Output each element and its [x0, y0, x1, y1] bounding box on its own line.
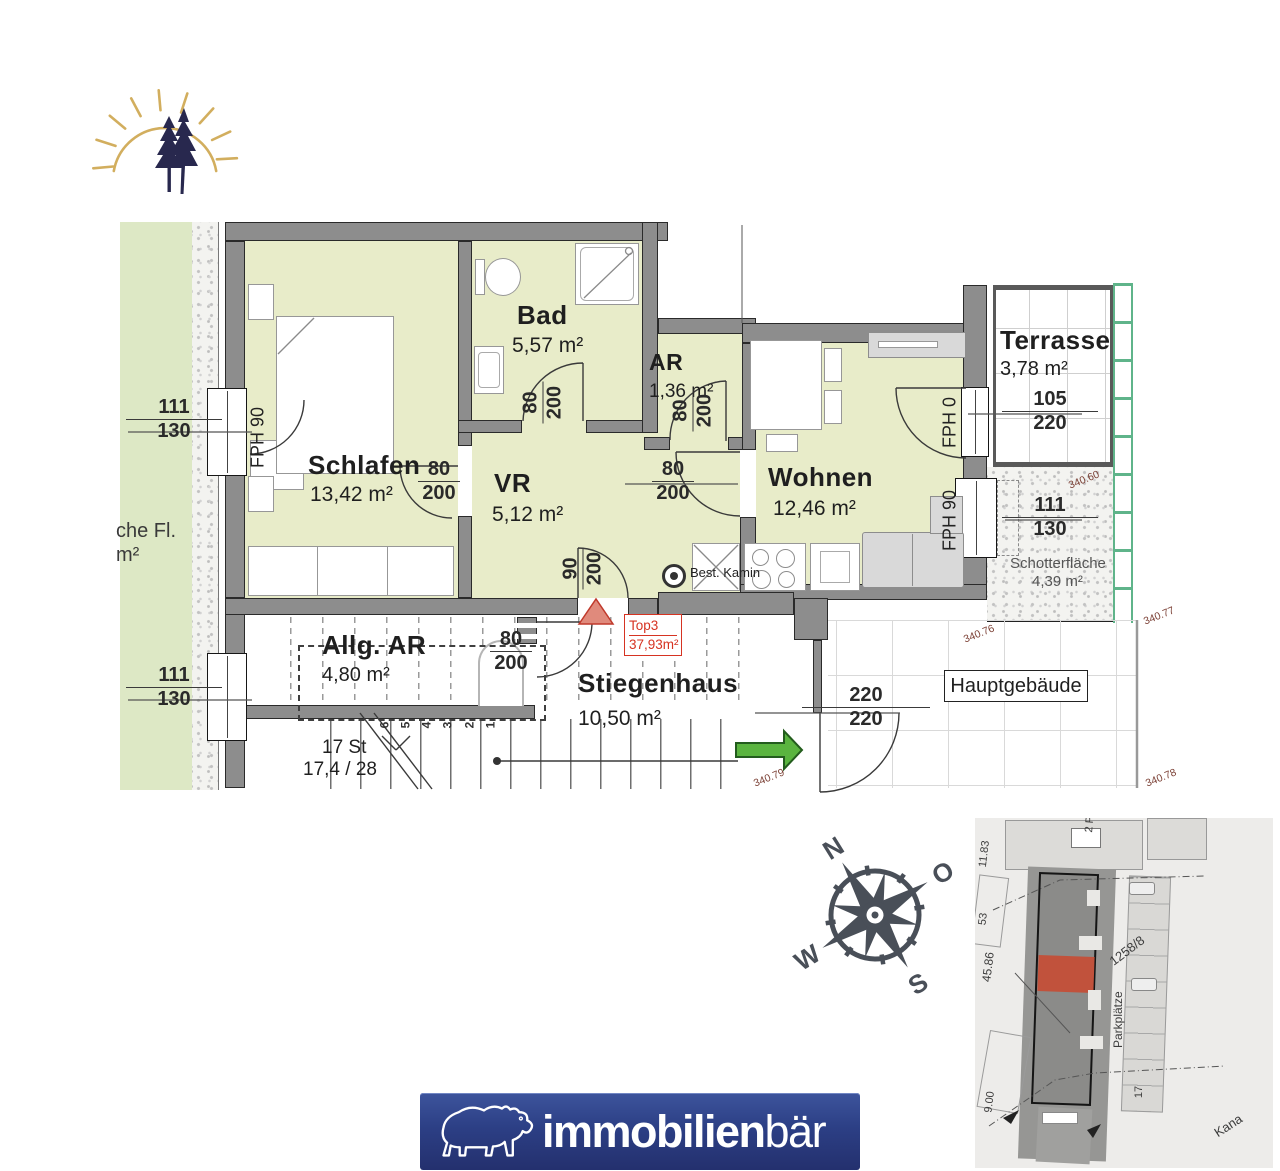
area-vr: 5,12 m²: [492, 503, 563, 527]
label-wohnen: Wohnen: [768, 462, 873, 493]
stair-linework: [360, 713, 738, 789]
unit-badge-area: 37,93m²: [629, 637, 679, 652]
site-plan: 11.83 53 45.86 9.00 2 Park 1258/8 Parkpl…: [975, 818, 1273, 1168]
dim-door-allg-ar: 80200: [490, 628, 532, 675]
step-number: 6: [377, 722, 391, 729]
dim-window-schotter: 111130: [1002, 494, 1098, 541]
area-schotterflaeche: 4,39 m²: [1032, 573, 1083, 590]
brand-name-bold: immobilien: [542, 1106, 765, 1157]
fph-left-label: FPH 90: [248, 388, 269, 488]
label-bad: Bad: [517, 300, 568, 331]
siteplan-label: Parkplätze: [1111, 991, 1125, 1048]
label-schotterflaeche: Schotterfläche: [1010, 555, 1106, 572]
dim-door-ar: 80200: [670, 390, 717, 432]
brand-banner: immobilienbär: [420, 1093, 860, 1170]
label-allg-ar: Allg. AR: [322, 630, 426, 661]
fph-right-window-label: FPH 90: [940, 471, 961, 571]
label-best-kamin: Best. Kamin: [690, 565, 760, 580]
unit-badge-name: Top3: [629, 617, 677, 636]
handrail-post: [493, 757, 501, 765]
compass-n: N: [817, 830, 849, 865]
left-cut-label-1: che Fl.: [116, 520, 176, 543]
stairs-count-label: 17 St: [322, 737, 366, 759]
hauptgebaeude-label-box: Hauptgebäude: [944, 670, 1088, 702]
unit-badge-top3: Top3 37,93m²: [624, 614, 682, 656]
label-terrasse: Terrasse: [1000, 325, 1111, 356]
dim-door-terrasse: 105220: [1002, 388, 1098, 435]
label-vr: VR: [494, 468, 531, 499]
stairs-ratio-label: 17,4 / 28: [303, 759, 377, 781]
area-terrasse: 3,78 m²: [1000, 358, 1068, 381]
bear-icon: [430, 1099, 538, 1165]
step-number: 4: [419, 722, 433, 729]
compass-rose: N O S W: [780, 815, 970, 1015]
dim-door-wohnen: 80200: [652, 458, 694, 505]
entrance-triangle-marker: [579, 599, 613, 624]
dim-door-bad: 80200: [520, 382, 567, 424]
hauptgebaeude-label: Hauptgebäude: [950, 675, 1081, 698]
siteplan-label: 53: [976, 912, 989, 926]
step-number: 3: [440, 722, 454, 729]
dim-door-schlafen: 80200: [418, 458, 460, 505]
area-stiegenhaus: 10,50 m²: [578, 707, 661, 731]
area-bad: 5,57 m²: [512, 334, 583, 358]
area-schlafen: 13,42 m²: [310, 483, 393, 507]
compass-o: O: [926, 855, 959, 891]
label-ar: AR: [649, 349, 683, 376]
brand-name-light: bär: [765, 1106, 826, 1157]
dim-door-entry: 90200: [560, 548, 607, 590]
brand-wordmark: immobilienbär: [542, 1106, 825, 1158]
area-allg-ar: 4,80 m²: [322, 664, 390, 687]
floor-plan-page: Schlafen 13,42 m² Bad 5,57 m² AR 1,36 m²…: [0, 0, 1280, 1171]
dim-window-left-top: 111130: [126, 396, 222, 443]
compass-w: W: [789, 938, 826, 977]
entry-arrow-icon: [736, 731, 802, 769]
dim-window-left-bottom: 111130: [126, 664, 222, 711]
siteplan-label: 17: [1133, 1086, 1145, 1098]
dim-door-haupt: 220220: [802, 684, 930, 731]
step-number: 1: [483, 722, 497, 729]
step-number: 5: [398, 722, 412, 729]
step-number: 2: [462, 722, 476, 729]
fph-terrace-door-label: FPH 0: [940, 373, 961, 473]
label-schlafen: Schlafen: [308, 450, 420, 481]
label-stiegenhaus: Stiegenhaus: [578, 668, 738, 699]
area-wohnen: 12,46 m²: [773, 497, 856, 521]
compass-s: S: [903, 966, 934, 1001]
left-cut-label-2: m²: [116, 544, 139, 567]
